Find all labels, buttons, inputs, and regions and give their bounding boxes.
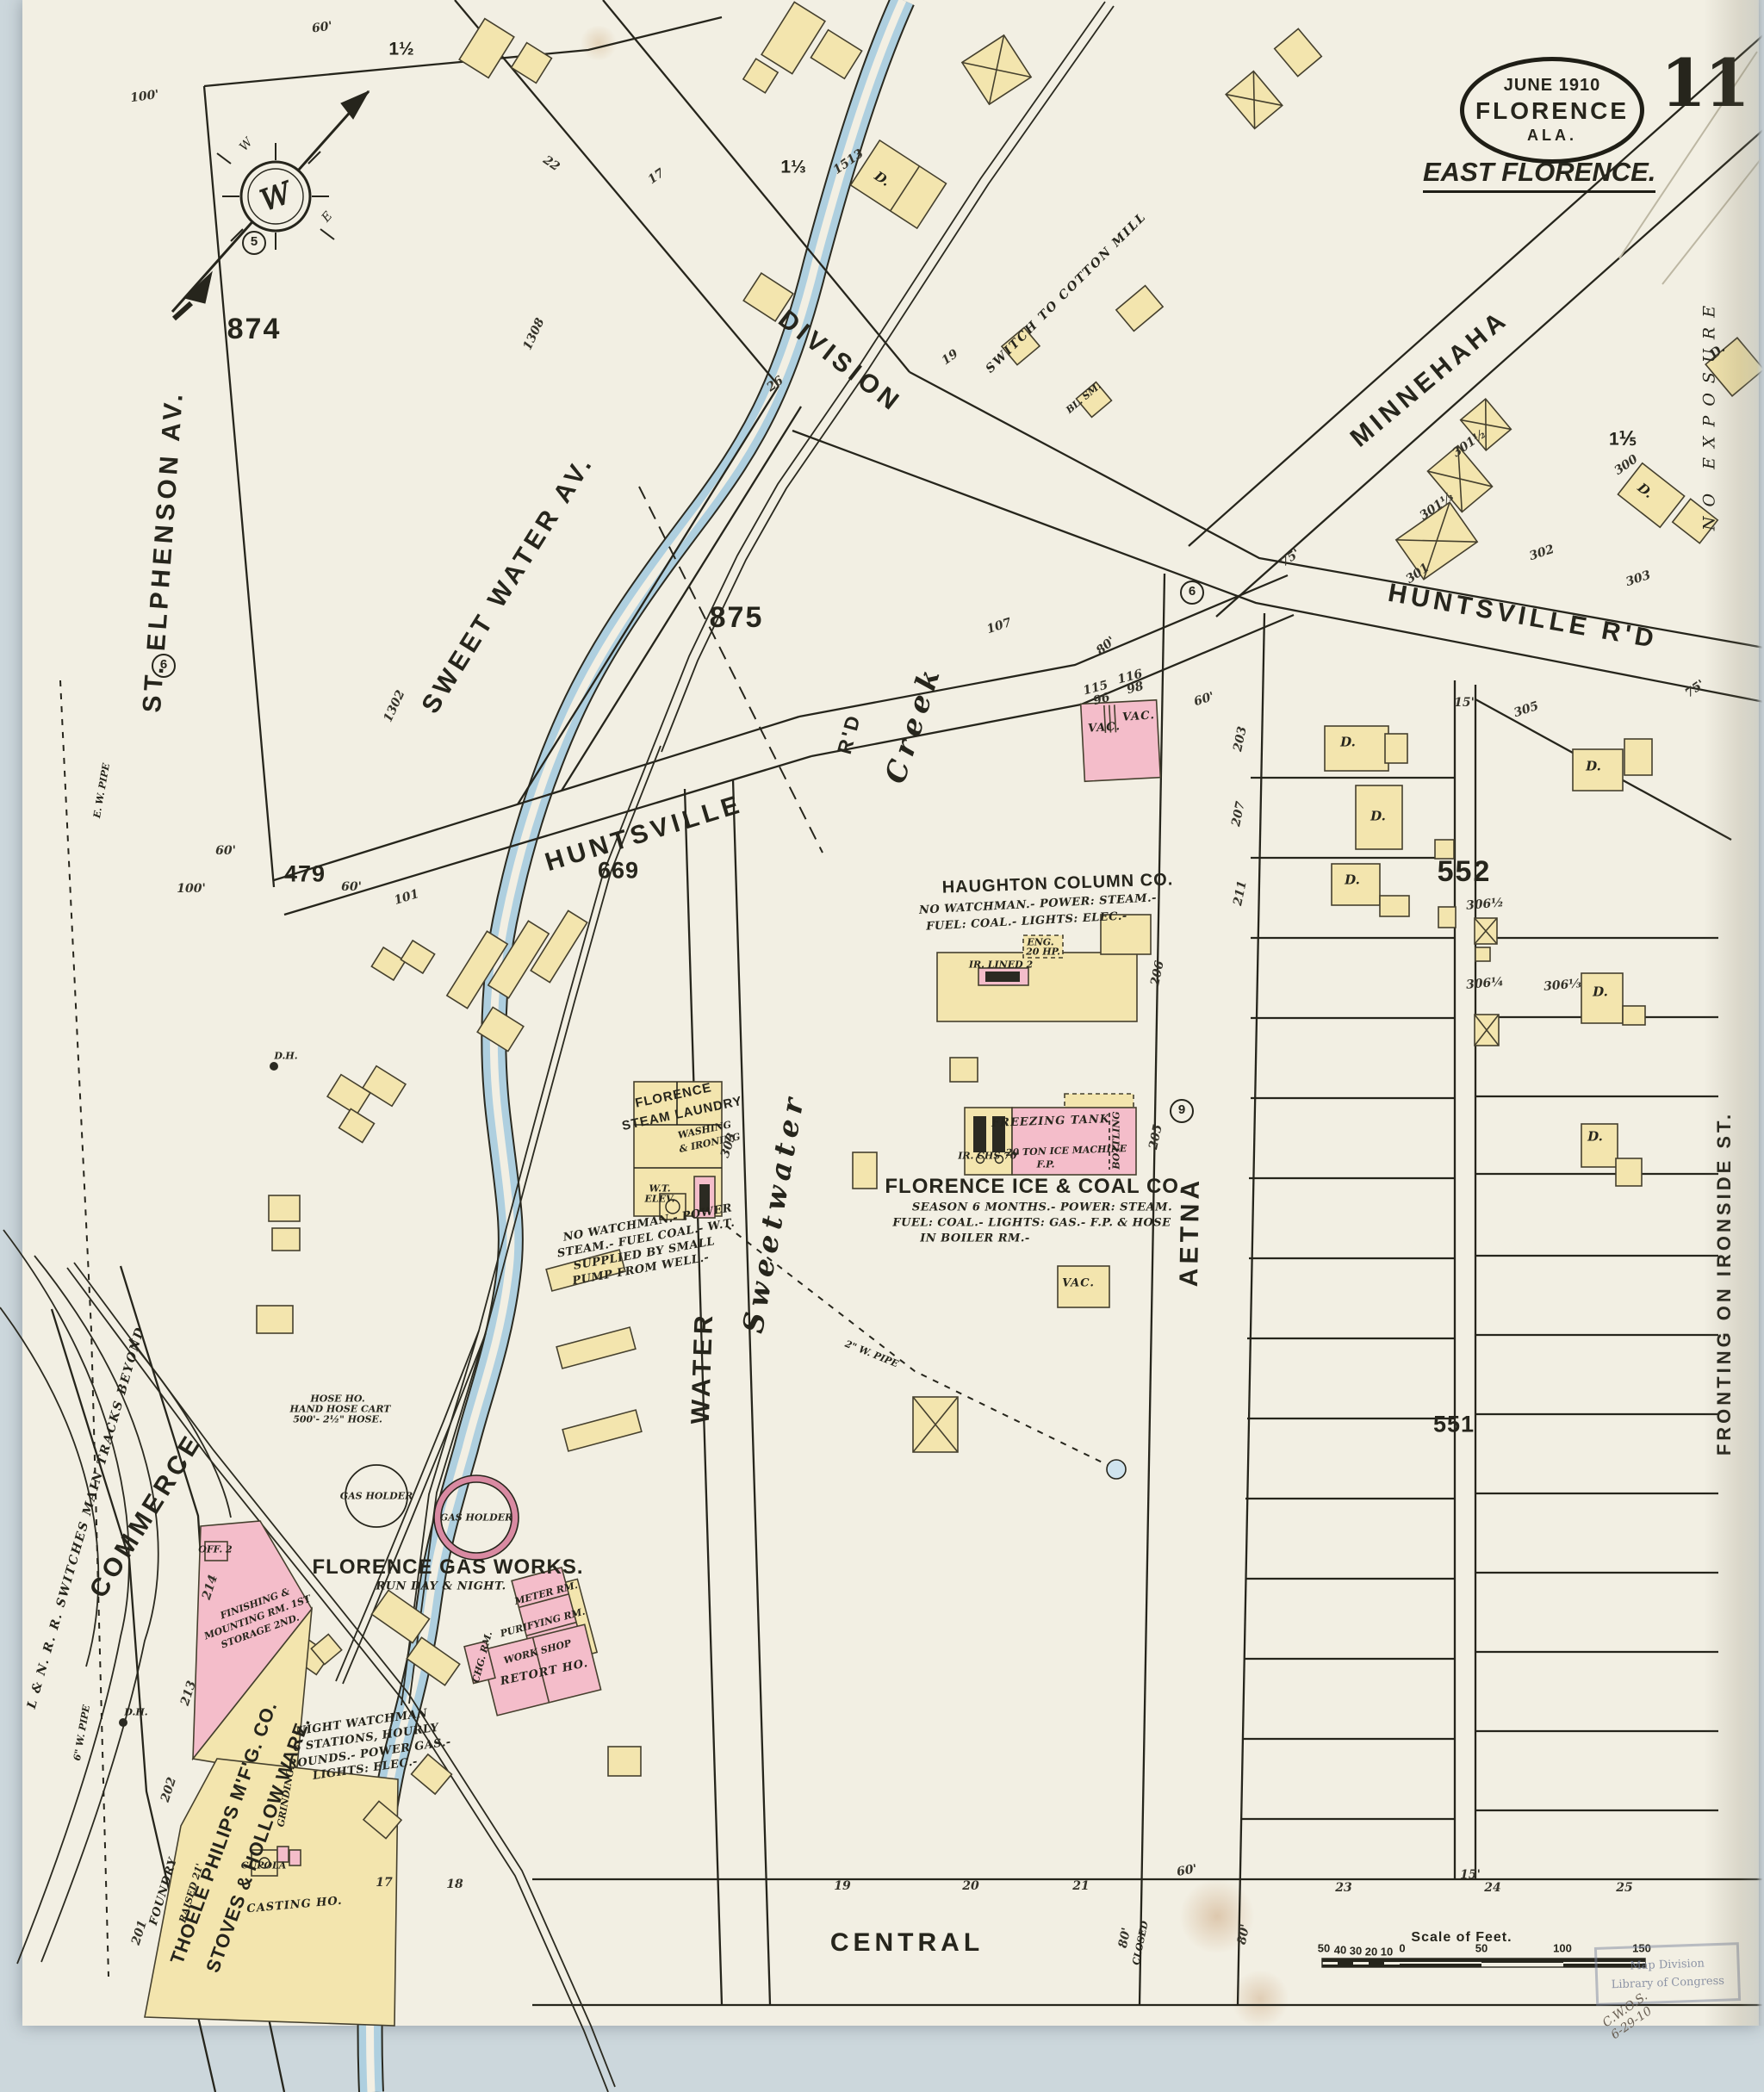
- building-note: GAS HOLDER: [340, 1492, 413, 1501]
- lot-number: 100': [177, 883, 206, 895]
- district-number: 6: [152, 654, 176, 678]
- building-note: BOTTLING: [1112, 1111, 1121, 1169]
- district-number: 5: [242, 231, 266, 255]
- scale-number: 10: [1381, 1946, 1393, 1958]
- district-number: 6: [1180, 580, 1204, 605]
- business-note: SEASON 6 MONTHS.- POWER: STEAM.: [912, 1202, 1172, 1214]
- dwelling-mark: D.: [1340, 736, 1356, 749]
- building-note: IR. LINED 2: [969, 960, 1033, 970]
- lot-number: 15': [1460, 1869, 1481, 1881]
- lot-number: 19: [834, 1880, 850, 1892]
- building-label: VAC.: [1062, 1278, 1095, 1289]
- sweetwater-creek: [370, 0, 904, 2092]
- building-note: 500'- 2½" HOSE.: [293, 1415, 382, 1425]
- lot-number: 25: [1616, 1882, 1632, 1894]
- subtitle: EAST FLORENCE.: [1423, 157, 1655, 193]
- street-label: WATER: [688, 1311, 718, 1425]
- block-number: 875: [710, 603, 764, 632]
- lot-number: 306⅓: [1543, 978, 1582, 993]
- well-icon: [1107, 1460, 1126, 1479]
- exposure-fraction: 1½: [388, 40, 413, 59]
- business-label: FLORENCE GAS WORKS.: [312, 1557, 583, 1578]
- lot-number: 21: [1072, 1880, 1089, 1892]
- lot-number: 15': [1454, 697, 1475, 709]
- lot-number: 24: [1484, 1882, 1500, 1894]
- stamp-line: Map Division: [1630, 1957, 1705, 1972]
- building-note: D.H.: [274, 1052, 297, 1061]
- title-state: ALA.: [1527, 127, 1577, 145]
- lot-number: 60': [1176, 1863, 1198, 1878]
- building-note: 20 HP.: [1026, 947, 1060, 957]
- title-oval: JUNE 1910 FLORENCE ALA.: [1460, 57, 1644, 164]
- dwelling-mark: D.: [1586, 760, 1601, 773]
- exposure-fraction: 1⅕: [1609, 431, 1637, 449]
- dwelling-mark: D.: [1587, 1131, 1603, 1144]
- business-note: RUN DAY & NIGHT.: [376, 1581, 506, 1592]
- business-note: IN BOILER RM.-: [920, 1233, 1030, 1245]
- block-number: 551: [1433, 1413, 1475, 1437]
- scale-number: 20: [1365, 1946, 1377, 1958]
- building-note: IR. CHS 70': [958, 1152, 1020, 1161]
- building-note: CUPOLA: [241, 1861, 286, 1871]
- scale-number: 0: [1399, 1943, 1405, 1954]
- scale-number: 40: [1334, 1945, 1346, 1956]
- building-note: GAS HOLDER: [440, 1513, 512, 1523]
- dwelling-mark: D.: [1370, 810, 1386, 823]
- building-note: W.T.: [649, 1184, 670, 1194]
- block-number: 552: [1438, 857, 1492, 886]
- building-note: F.P.: [1037, 1160, 1055, 1170]
- lot-number: 60': [341, 881, 362, 893]
- lot-number: 60': [215, 845, 236, 857]
- lot-number: 17: [376, 1877, 392, 1889]
- exposure-fraction: 1⅓: [780, 158, 805, 177]
- block-number: 669: [598, 860, 639, 883]
- scale-number: 30: [1350, 1946, 1362, 1957]
- building-label: VAC.: [1088, 721, 1121, 735]
- scale-title: Scale of Feet.: [1411, 1931, 1512, 1945]
- title-city: FLORENCE: [1475, 97, 1629, 125]
- dwelling-mark: D.: [1345, 874, 1360, 887]
- building-note: OFF. 2: [198, 1545, 232, 1555]
- building-note: ELEV.: [645, 1195, 675, 1204]
- scale-number: 50: [1475, 1943, 1488, 1954]
- business-label: FLORENCE ICE & COAL CO.: [885, 1176, 1185, 1197]
- district-number: 9: [1170, 1099, 1194, 1123]
- lot-number: 306½: [1466, 897, 1505, 912]
- business-note: FUEL: COAL.- LIGHTS: GAS.- F.P. & HOSE: [892, 1218, 1171, 1229]
- scale-number: 100: [1553, 1943, 1572, 1954]
- dwelling-mark: D.: [1593, 986, 1608, 999]
- block-number: 874: [227, 314, 282, 344]
- block-number: 479: [284, 863, 326, 886]
- lot-number: 306¼: [1466, 976, 1505, 991]
- title-date: JUNE 1910: [1504, 76, 1600, 96]
- building-label: VAC.: [1122, 710, 1156, 723]
- map-sheet: W JUNE 1910 FLORENCE ALA. 11 EAST FLOREN…: [0, 0, 1764, 2092]
- compass-rose-icon: W: [172, 91, 369, 319]
- lot-number: 18: [446, 1878, 463, 1890]
- building-note: HOSE HO.: [310, 1394, 364, 1404]
- building-note: D.H.: [124, 1708, 147, 1717]
- scale-number: 50: [1318, 1943, 1330, 1954]
- lot-number: 20: [962, 1880, 978, 1892]
- street-label: CENTRAL: [830, 1930, 984, 1956]
- page-curl-shadow: [1704, 0, 1764, 2026]
- lot-number: 23: [1335, 1882, 1351, 1894]
- lot-number: 60': [311, 20, 332, 34]
- building-note: HAND HOSE CART: [290, 1405, 391, 1414]
